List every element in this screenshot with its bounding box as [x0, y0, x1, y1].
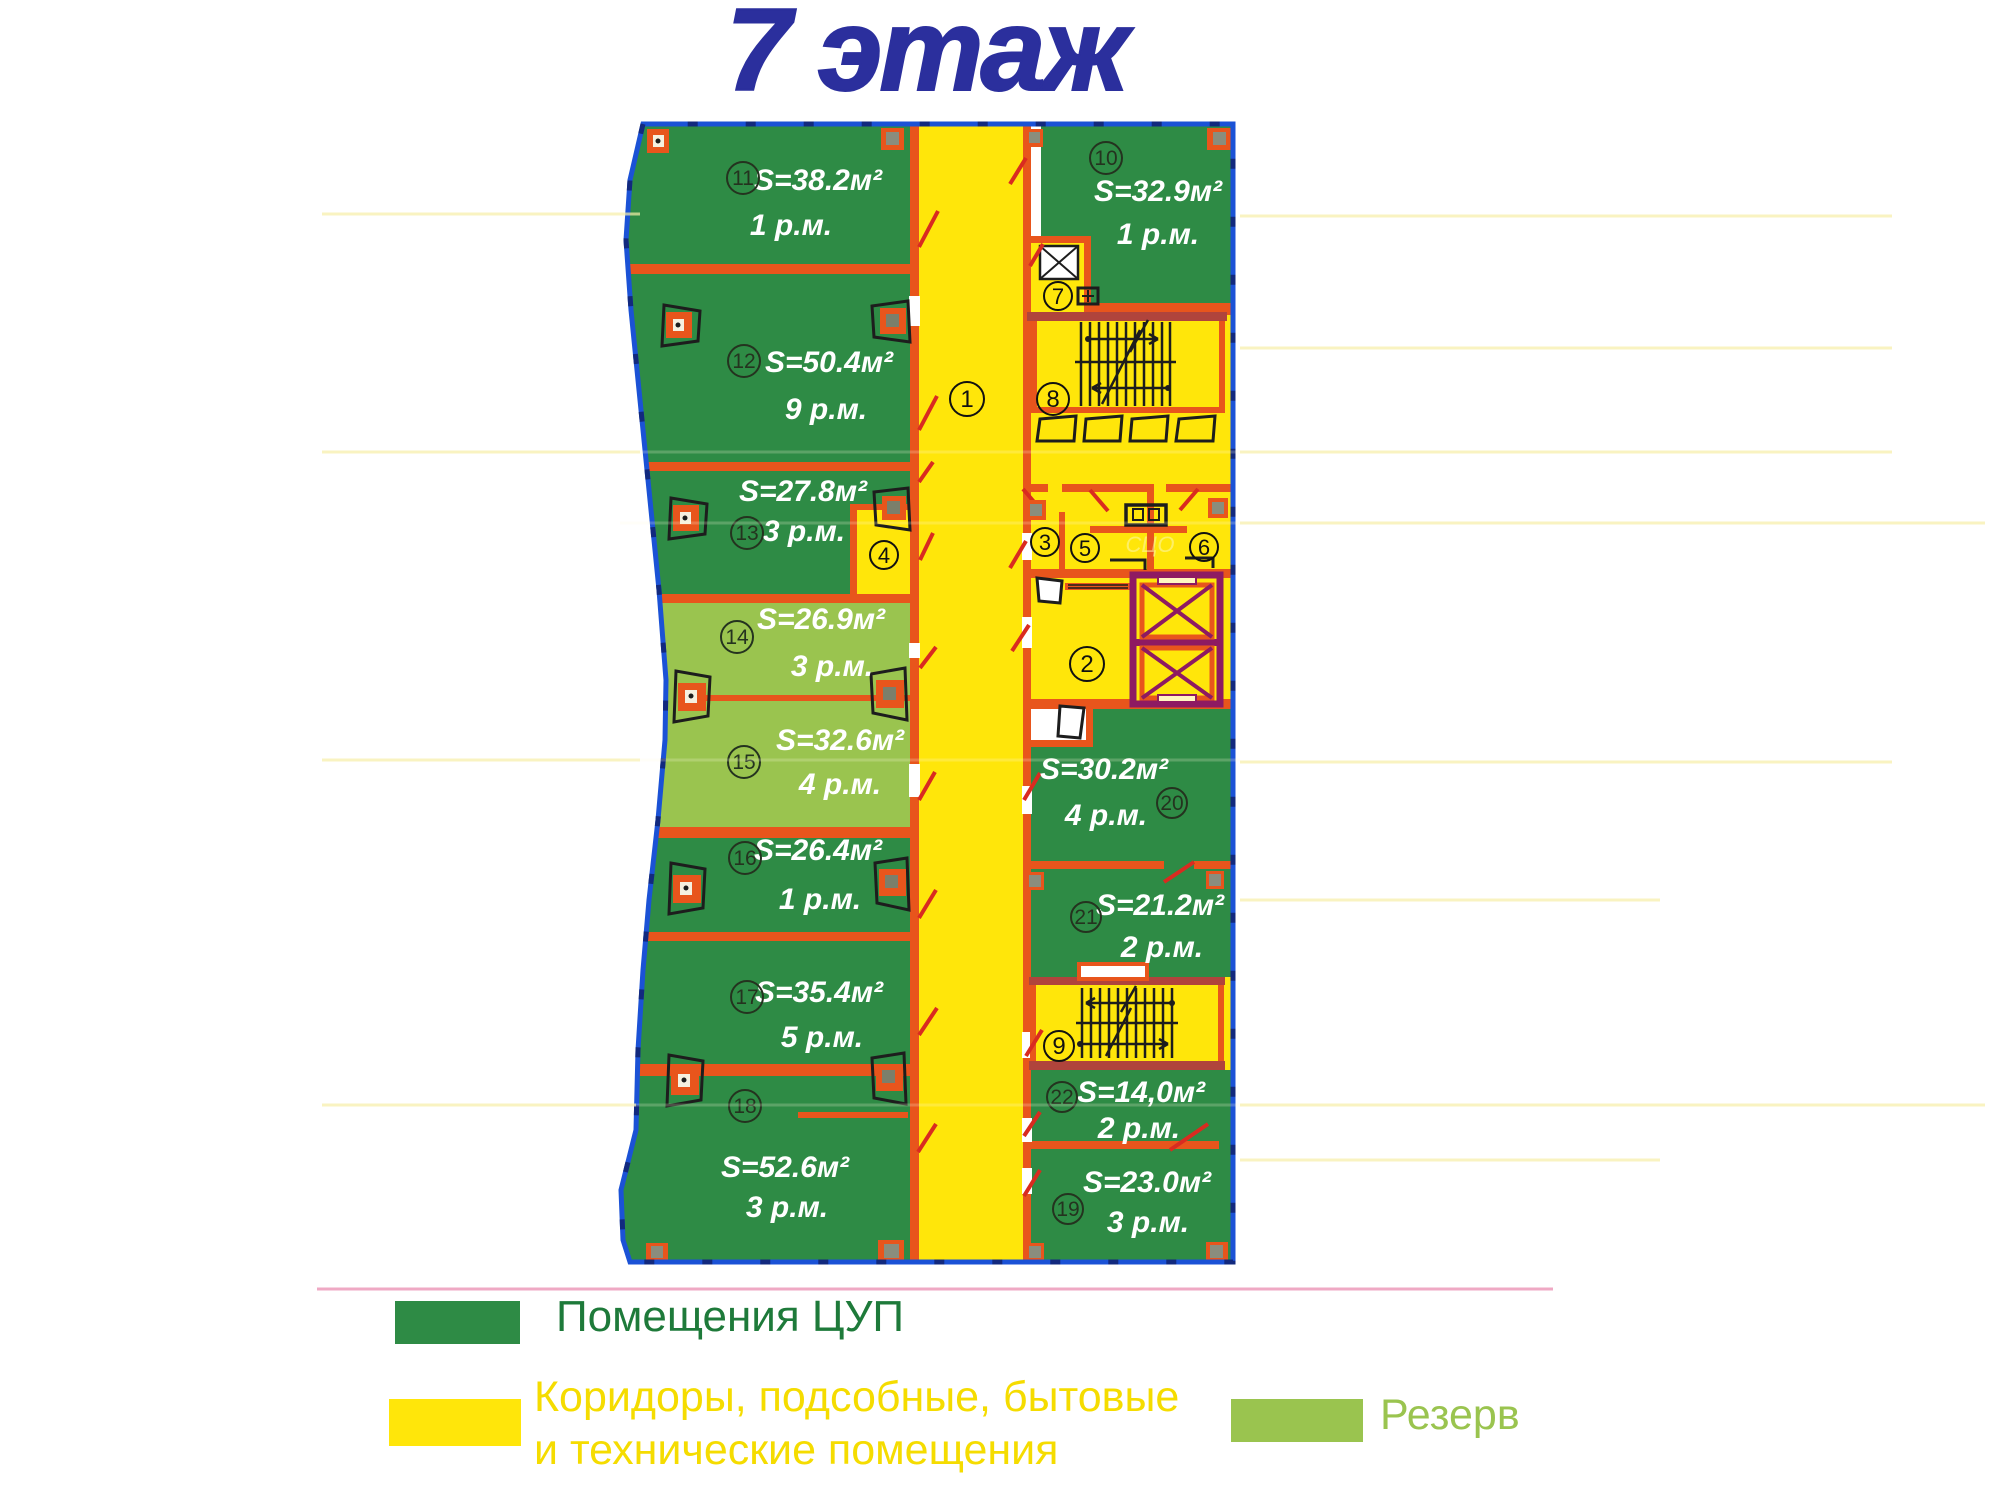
svg-text:17: 17 — [735, 986, 758, 1009]
svg-text:8: 8 — [1046, 386, 1059, 413]
svg-text:9 р.м.: 9 р.м. — [785, 393, 867, 426]
svg-text:4 р.м.: 4 р.м. — [1064, 799, 1147, 832]
svg-text:1 р.м.: 1 р.м. — [750, 209, 832, 242]
svg-text:20: 20 — [1160, 792, 1183, 815]
svg-text:S=30.2м²: S=30.2м² — [1040, 753, 1169, 786]
svg-text:16: 16 — [733, 847, 756, 870]
svg-text:2 р.м.: 2 р.м. — [1097, 1112, 1180, 1145]
svg-text:9: 9 — [1052, 1033, 1065, 1060]
svg-text:1: 1 — [960, 386, 973, 413]
svg-text:7: 7 — [1052, 284, 1064, 309]
svg-text:5: 5 — [1079, 536, 1091, 561]
svg-text:3 р.м.: 3 р.м. — [746, 1191, 828, 1224]
svg-text:СЦО: СЦО — [1126, 532, 1175, 557]
svg-text:S=50.4м²: S=50.4м² — [765, 346, 894, 379]
svg-text:6: 6 — [1198, 535, 1210, 560]
svg-text:11: 11 — [732, 167, 754, 190]
svg-text:и технические помещения: и технические помещения — [534, 1426, 1058, 1474]
svg-text:15: 15 — [732, 751, 755, 774]
svg-text:1 р.м.: 1 р.м. — [779, 883, 861, 916]
svg-text:3 р.м.: 3 р.м. — [1107, 1206, 1189, 1239]
svg-text:S=26.4м²: S=26.4м² — [754, 834, 883, 867]
svg-text:S=35.4м²: S=35.4м² — [755, 976, 884, 1009]
svg-text:S=27.8м²: S=27.8м² — [739, 475, 868, 508]
svg-text:Помещения ЦУП: Помещения ЦУП — [556, 1292, 904, 1341]
svg-text:14: 14 — [725, 626, 749, 649]
svg-text:5 р.м.: 5 р.м. — [781, 1021, 863, 1054]
svg-text:S=23.0м²: S=23.0м² — [1083, 1166, 1212, 1199]
svg-text:2: 2 — [1080, 651, 1093, 678]
svg-text:S=32.9м²: S=32.9м² — [1094, 175, 1223, 208]
svg-text:3 р.м.: 3 р.м. — [791, 650, 873, 683]
svg-text:S=26.9м²: S=26.9м² — [757, 603, 886, 636]
svg-text:10: 10 — [1094, 147, 1117, 170]
svg-text:Резерв: Резерв — [1380, 1391, 1520, 1439]
svg-text:21: 21 — [1074, 906, 1097, 929]
svg-text:13: 13 — [735, 522, 758, 545]
svg-text:3: 3 — [1039, 530, 1051, 555]
svg-text:4 р.м.: 4 р.м. — [798, 768, 881, 801]
svg-text:S=38.2м²: S=38.2м² — [754, 164, 883, 197]
svg-text:S=52.6м²: S=52.6м² — [721, 1151, 850, 1184]
svg-text:2 р.м.: 2 р.м. — [1120, 931, 1203, 964]
svg-text:7 этаж: 7 этаж — [726, 0, 1134, 115]
svg-text:1 р.м.: 1 р.м. — [1117, 218, 1199, 251]
svg-text:Коридоры, подсобные, бытовые: Коридоры, подсобные, бытовые — [534, 1373, 1179, 1421]
svg-text:S=21.2м²: S=21.2м² — [1096, 889, 1225, 922]
svg-text:19: 19 — [1056, 1198, 1079, 1221]
svg-text:12: 12 — [732, 350, 755, 373]
svg-text:3 р.м.: 3 р.м. — [763, 515, 845, 548]
svg-text:4: 4 — [878, 543, 890, 568]
svg-text:S=32.6м²: S=32.6м² — [776, 724, 905, 757]
